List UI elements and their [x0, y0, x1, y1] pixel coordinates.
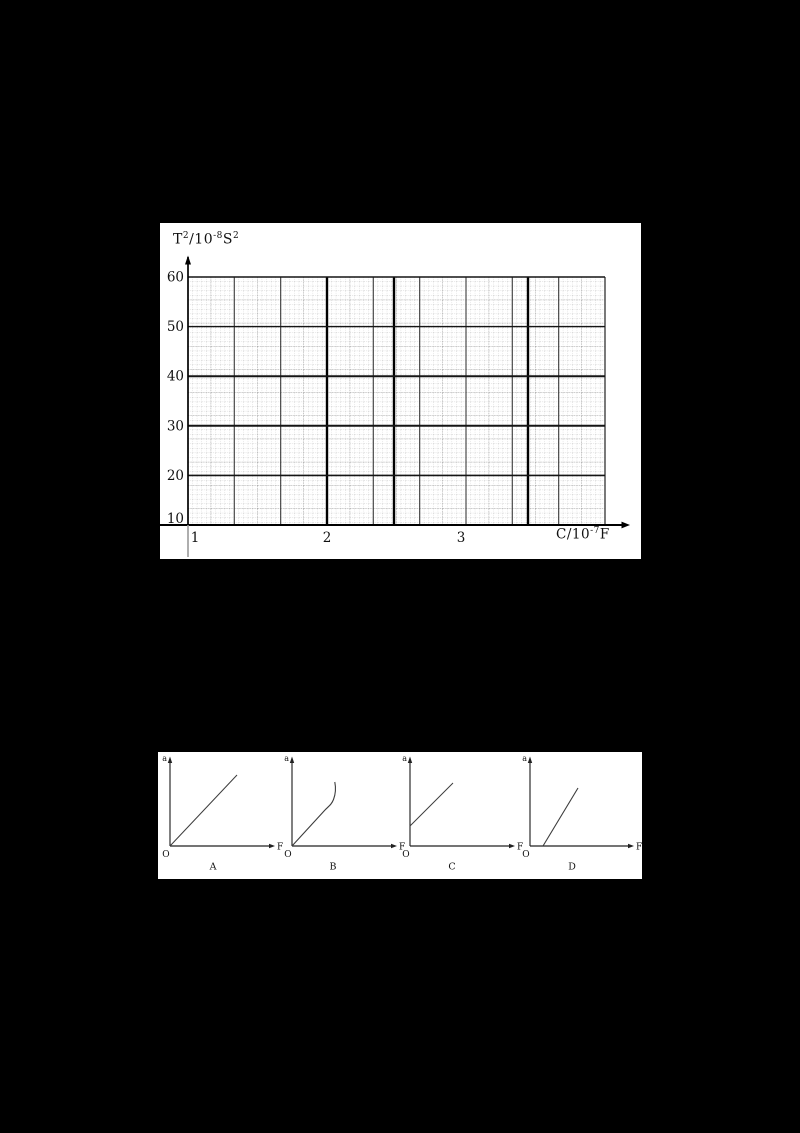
y-title-part: -8 [213, 231, 223, 241]
option-d-curve [543, 788, 578, 846]
graph-paper-grid [188, 277, 605, 525]
y-tick-label: 10 [167, 511, 184, 527]
option-graph-a: a F O A [162, 754, 283, 873]
x-tick-labels: 1 2 3 [191, 530, 466, 546]
c-ylabel: a [402, 754, 407, 763]
option-b-letter: B [330, 862, 337, 873]
option-graph-c: a F O C [402, 754, 523, 873]
d-y-arrow-icon [528, 757, 532, 764]
option-d-letter: D [568, 862, 576, 873]
d-ylabel: a [522, 754, 527, 763]
c-y-arrow-icon [408, 757, 412, 764]
y-tick-label: 40 [167, 369, 184, 385]
b-y-arrow-icon [290, 757, 294, 764]
c-x-arrow-icon [509, 844, 515, 848]
y-tick-label: 20 [167, 468, 184, 484]
x-axis-title: C/10-7F [556, 526, 610, 543]
b-x-arrow-icon [391, 844, 397, 848]
option-b-curve [292, 782, 335, 846]
x-tick-label: 1 [191, 530, 200, 546]
answer-options-panel: a F O A a F O B [158, 752, 642, 879]
y-tick-label: 30 [167, 418, 184, 434]
option-a-curve [170, 775, 237, 846]
c-origin-label: O [402, 850, 409, 860]
a-ylabel: a [162, 754, 167, 763]
x-tick-label: 2 [323, 530, 332, 546]
medium-grid [188, 277, 605, 525]
d-xlabel: F [636, 843, 642, 853]
y-tick-label: 60 [167, 270, 184, 286]
option-a-letter: A [209, 862, 217, 873]
x-title-part: F [600, 527, 610, 543]
x-tick-label: 3 [457, 530, 466, 546]
y-title-part: 2 [233, 231, 239, 241]
y-axis-arrow-icon [185, 256, 191, 265]
a-y-arrow-icon [168, 757, 172, 764]
x-title-part: C/10 [556, 527, 590, 543]
a-xlabel: F [277, 843, 283, 853]
graph-paper-chart: 60 50 40 30 20 10 1 2 3 [160, 223, 641, 559]
x-title-part: -7 [590, 526, 600, 536]
option-graphs: a F O A a F O B [158, 752, 642, 879]
option-graph-b: a F O B [284, 754, 405, 873]
y-tick-label: 50 [167, 319, 184, 335]
d-origin-label: O [522, 850, 529, 860]
option-c-letter: C [448, 862, 455, 873]
y-axis-title: T2/10-8S2 [173, 231, 239, 248]
a-x-arrow-icon [269, 844, 275, 848]
option-graph-d: a F O D [522, 754, 642, 873]
y-title-part: T [173, 232, 183, 248]
y-title-part: /10 [189, 232, 213, 248]
y-title-part: S [223, 232, 233, 248]
a-origin-label: O [162, 850, 169, 860]
t2-vs-c-graph-panel: T2/10-8S2 C/10-7F [160, 223, 641, 559]
y-tick-labels: 60 50 40 30 20 10 [167, 270, 184, 528]
b-origin-label: O [284, 850, 291, 860]
b-ylabel: a [284, 754, 289, 763]
d-x-arrow-icon [628, 844, 634, 848]
option-c-curve [410, 783, 453, 826]
x-axis-arrow-icon [622, 522, 631, 529]
